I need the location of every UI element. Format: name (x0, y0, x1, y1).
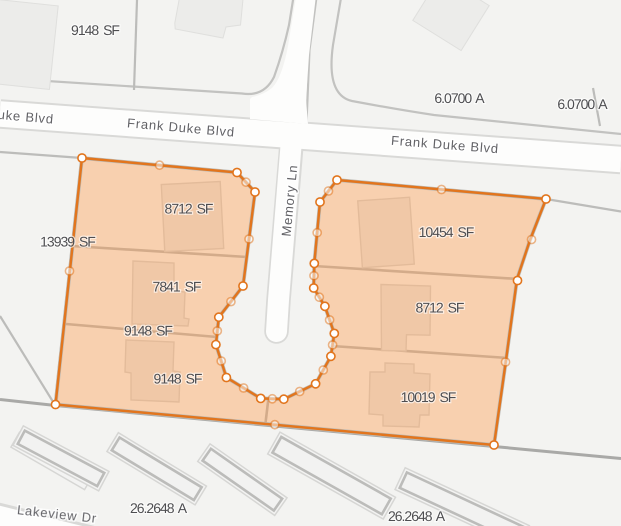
svg-text:6.0700 A: 6.0700 A (434, 90, 485, 106)
svg-text:26.2648 A: 26.2648 A (130, 500, 188, 516)
svg-text:6.0700 A: 6.0700 A (557, 96, 608, 112)
svg-text:8712 SF: 8712 SF (416, 300, 464, 316)
svg-text:7841 SF: 7841 SF (153, 279, 201, 295)
svg-text:9148 SF: 9148 SF (154, 371, 202, 387)
svg-text:26.2648 A: 26.2648 A (388, 508, 446, 524)
svg-text:10454 SF: 10454 SF (419, 224, 474, 240)
svg-text:10019 SF: 10019 SF (401, 389, 456, 405)
svg-text:9148 SF: 9148 SF (124, 323, 172, 339)
svg-text:13939 SF: 13939 SF (40, 234, 95, 250)
svg-text:9148 SF: 9148 SF (71, 22, 119, 38)
svg-text:8712 SF: 8712 SF (165, 201, 213, 217)
